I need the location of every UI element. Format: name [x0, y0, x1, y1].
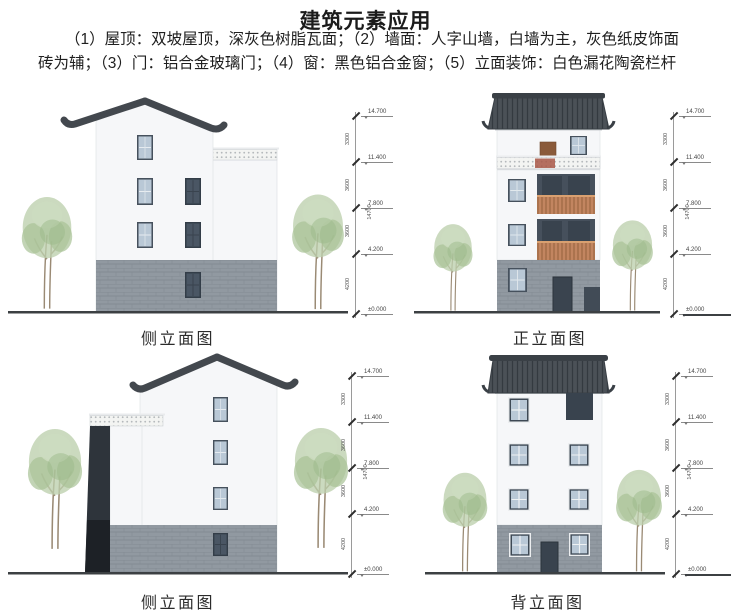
segment-dimension: 3300: [344, 126, 352, 152]
back-elevation-drawing: [425, 352, 670, 581]
dimension-line: [351, 372, 352, 578]
railing-cap: [209, 148, 279, 150]
tiled-roof: [488, 360, 609, 393]
level-marker-icon: [364, 254, 368, 257]
window: [137, 135, 153, 160]
terrace-lattice-railing: [211, 150, 277, 161]
ground-line: [8, 311, 348, 314]
level-marker-icon: [360, 422, 364, 425]
level-flag: 7.800: [681, 461, 727, 472]
balcony-railing: [537, 196, 595, 214]
level-flag: 4.200: [361, 247, 407, 258]
level-flag: ±0.000: [357, 567, 403, 578]
level-flag: 7.800: [361, 201, 407, 212]
segment-dimension: 3600: [344, 218, 352, 244]
level-flag: 11.400: [679, 155, 725, 166]
level-flag: 7.800: [679, 201, 725, 212]
segment-dimension: 3300: [662, 126, 670, 152]
side-elevation-bottom-drawing: [8, 352, 348, 581]
level-marker-icon: [364, 208, 368, 211]
front-elevation-drawing: [400, 92, 662, 320]
floor-slab-line: [497, 169, 600, 170]
window: [185, 222, 201, 248]
back-door: [541, 542, 558, 573]
tiled-roof: [488, 97, 609, 129]
building: [64, 101, 279, 312]
building: [483, 355, 614, 573]
level-marker-icon: [682, 116, 686, 119]
level-flag: 7.800: [357, 461, 403, 472]
railing-top-rail: [537, 195, 595, 197]
level-marker-icon: [360, 376, 364, 379]
dimension-assembly: 3300 3600 3600 4200 14700 14.700 11.400 …: [663, 108, 729, 324]
level-flag: 14.700: [361, 109, 407, 120]
level-marker-icon: [682, 162, 686, 165]
level-flag: 11.400: [361, 155, 407, 166]
wood-panel: [540, 142, 556, 156]
level-marker-icon: [684, 468, 688, 471]
ground-line: [685, 574, 731, 576]
window: [185, 272, 201, 298]
level-flag: 11.400: [681, 415, 727, 426]
elevation-caption: 侧立面图: [8, 589, 348, 613]
tree: [616, 470, 662, 571]
level-flag: ±0.000: [361, 307, 407, 318]
window: [568, 488, 590, 511]
window: [213, 487, 228, 510]
segment-dimension: 4200: [340, 531, 348, 557]
level-marker-icon: [360, 574, 364, 577]
dimension-assembly: 3300 3600 3600 4200 14700 14.700 11.400 …: [345, 108, 411, 324]
level-flag: ±0.000: [679, 307, 725, 318]
window: [213, 440, 228, 465]
building: [85, 357, 295, 573]
recessed-opening: [566, 393, 593, 420]
level-marker-icon: [682, 254, 686, 257]
metal-fence: [584, 287, 600, 312]
window: [185, 178, 201, 205]
segment-dimension: 3600: [662, 218, 670, 244]
balcony-upper: [537, 174, 595, 214]
window: [508, 397, 530, 423]
window: [569, 533, 590, 556]
segment-dimension: 3300: [340, 386, 348, 412]
level-flag: 14.700: [357, 369, 403, 380]
building: [483, 93, 614, 312]
ground-line: [8, 572, 348, 575]
level-flag: 14.700: [679, 109, 725, 120]
segment-dimension: 3600: [664, 478, 672, 504]
level-marker-icon: [364, 116, 368, 119]
segment-dimension: 3600: [662, 172, 670, 198]
window: [137, 222, 153, 248]
dimension-line: [673, 112, 674, 318]
level-flag: ±0.000: [681, 567, 727, 578]
balcony-lower: [537, 219, 595, 260]
ground-line: [414, 311, 660, 314]
dimension-assembly: 3300 3600 3600 4200 14700 14.700 11.400 …: [341, 368, 407, 584]
roof-ridge: [489, 355, 608, 361]
elevation-caption: 侧立面图: [8, 325, 348, 349]
elevation-caption: 背立面图: [425, 589, 670, 613]
dimension-line: [675, 372, 676, 578]
glass-entry-door: [553, 277, 572, 312]
railing-top-rail: [537, 241, 595, 243]
level-marker-icon: [684, 422, 688, 425]
level-flag: 4.200: [681, 507, 727, 518]
segment-dimension: 4200: [344, 271, 352, 297]
brick-base: [110, 525, 277, 573]
level-flag: 11.400: [357, 415, 403, 426]
level-marker-icon: [364, 314, 368, 317]
segment-dimension: 3600: [340, 432, 348, 458]
tree: [443, 473, 488, 572]
window: [137, 178, 153, 205]
tree: [28, 429, 82, 549]
tree: [433, 224, 472, 310]
window: [508, 224, 526, 246]
level-marker-icon: [364, 162, 368, 165]
level-flag: 14.700: [681, 369, 727, 380]
ground-line: [425, 572, 665, 575]
level-marker-icon: [360, 468, 364, 471]
railing-cap: [496, 156, 601, 158]
window: [568, 443, 590, 467]
level-marker-icon: [682, 208, 686, 211]
ground-line: [683, 314, 731, 316]
segment-dimension: 3300: [664, 386, 672, 412]
dimension-assembly: 3300 3600 3600 4200 14700 14.700 11.400 …: [665, 368, 731, 584]
level-flag: 4.200: [679, 247, 725, 258]
window: [509, 533, 531, 557]
window: [508, 443, 530, 467]
tree: [612, 220, 653, 310]
elevation-caption: 正立面图: [420, 325, 680, 349]
level-marker-icon: [684, 514, 688, 517]
level-marker-icon: [360, 514, 364, 517]
segment-dimension: 3600: [664, 432, 672, 458]
roof-ridge: [492, 93, 605, 99]
segment-dimension: 4200: [662, 271, 670, 297]
stair-shaft-lower: [85, 520, 110, 573]
window: [213, 533, 228, 556]
balcony-railing: [537, 242, 595, 260]
segment-dimension: 4200: [664, 531, 672, 557]
window: [508, 488, 530, 511]
window: [508, 179, 526, 202]
building-elements-description: （1）屋顶：双坡屋顶，深灰色树脂瓦面；（2）墙面：人字山墙，白墙为主，灰色纸皮饰…: [38, 28, 688, 75]
ceramic-flower-panel: [535, 159, 555, 169]
level-marker-icon: [684, 376, 688, 379]
level-flag: 4.200: [357, 507, 403, 518]
dimension-line: [355, 112, 356, 318]
window: [213, 397, 228, 422]
terrace-lattice-railing: [90, 416, 163, 427]
segment-dimension: 3600: [344, 172, 352, 198]
segment-dimension: 3600: [340, 478, 348, 504]
window: [570, 136, 587, 155]
side-elevation-top-drawing: [8, 92, 348, 320]
tree: [292, 195, 344, 310]
architectural-elevation-sheet: 建筑元素应用 （1）屋顶：双坡屋顶，深灰色树脂瓦面；（2）墙面：人字山墙，白墙为…: [0, 0, 731, 614]
tree: [22, 197, 72, 309]
window: [508, 268, 527, 292]
